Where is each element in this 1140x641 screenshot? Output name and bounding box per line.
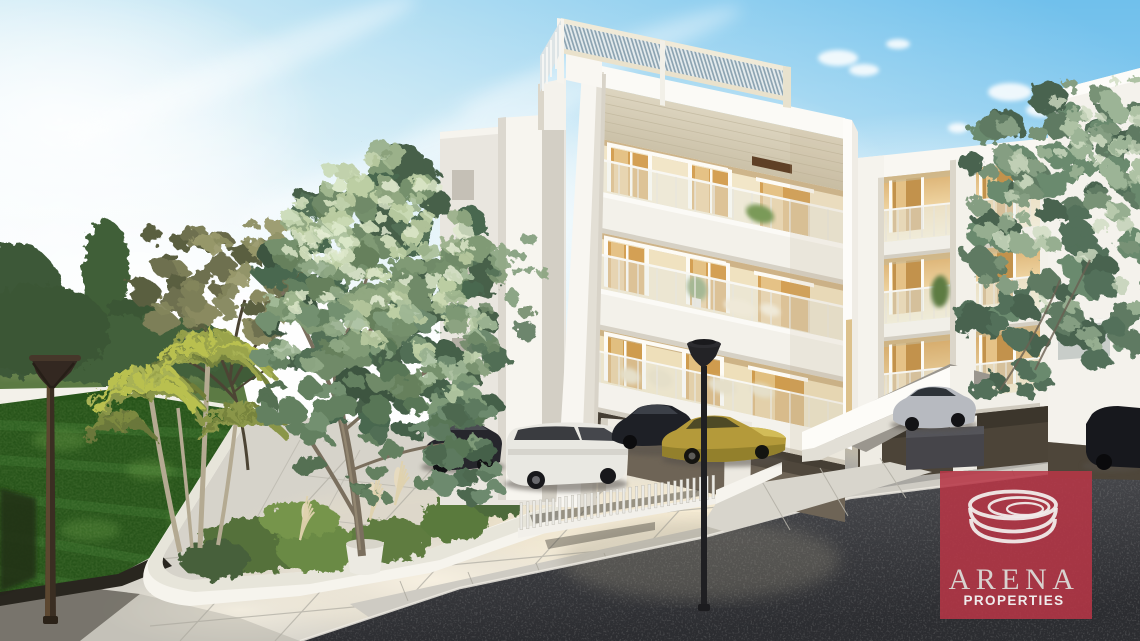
svg-text:ARENA: ARENA	[949, 563, 1080, 596]
svg-text:PROPERTIES: PROPERTIES	[963, 593, 1064, 608]
